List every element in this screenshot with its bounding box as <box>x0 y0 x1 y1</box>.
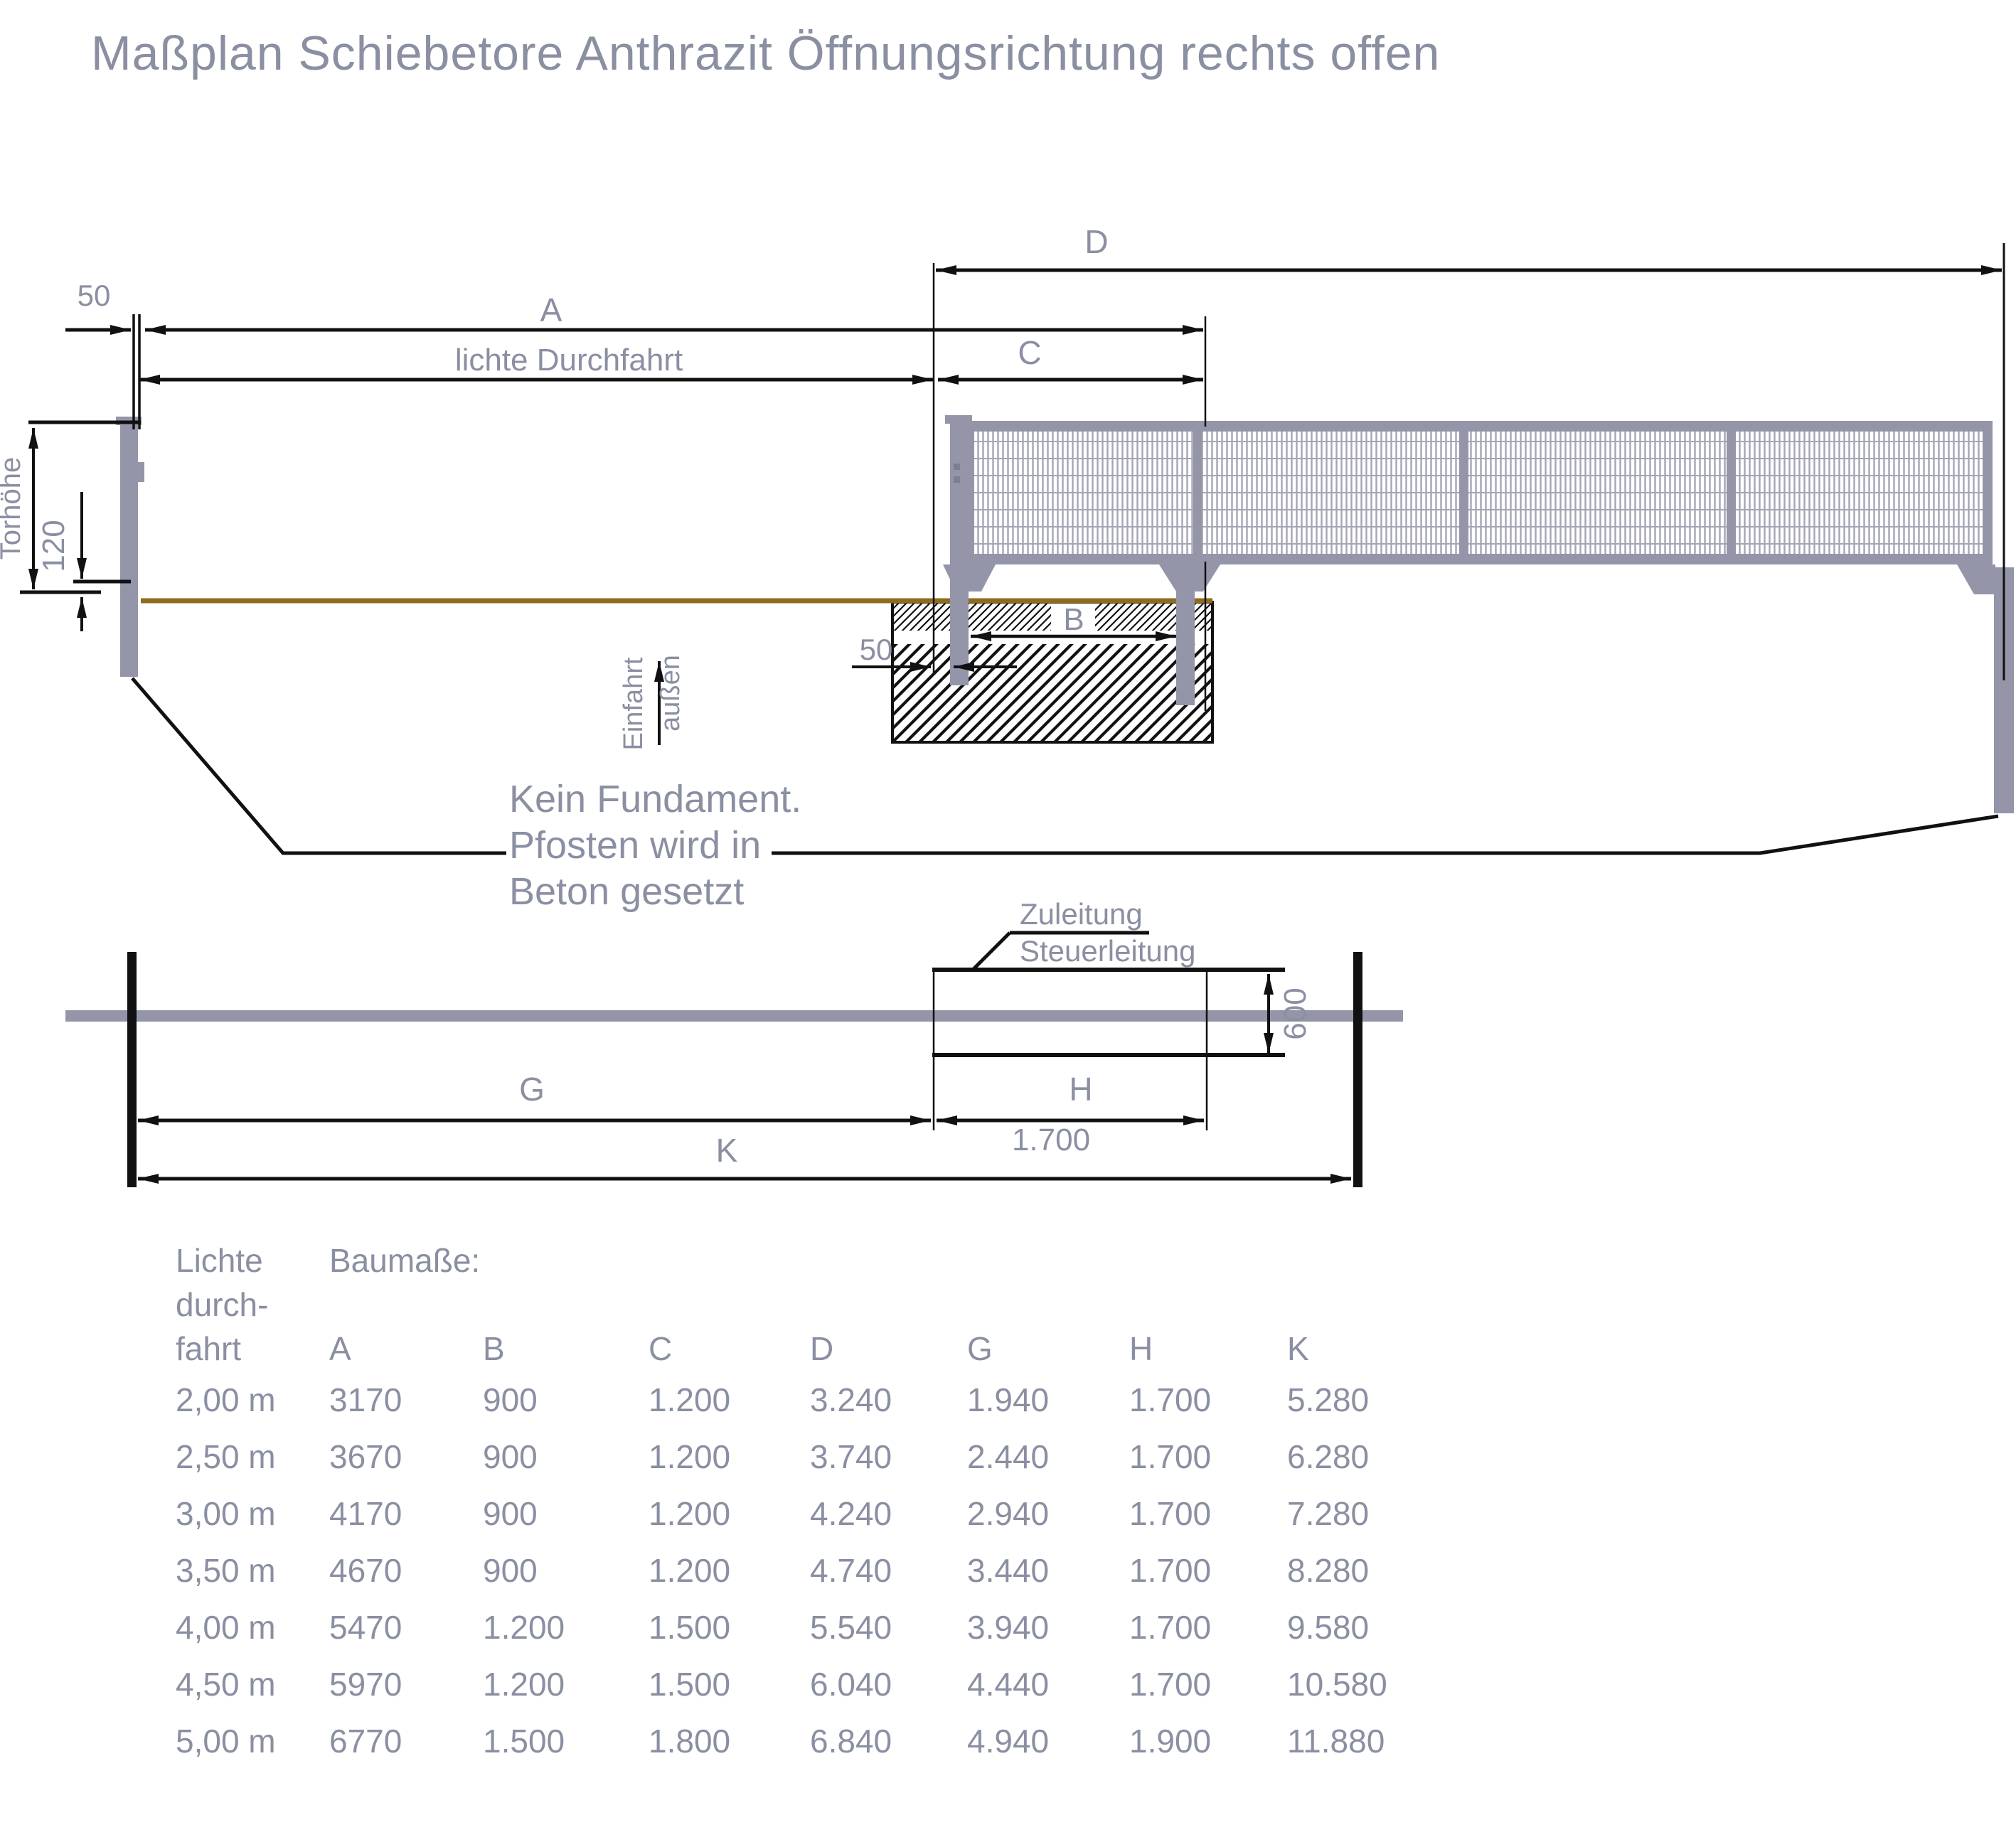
table-cell: 2,50 m <box>176 1439 329 1496</box>
table-column-header: K <box>1287 1331 1429 1382</box>
table-column-header: C <box>649 1331 810 1382</box>
table-cell: 1.940 <box>967 1382 1129 1439</box>
table-cell: 6.280 <box>1287 1439 1429 1496</box>
table-cell: 6.040 <box>810 1666 967 1723</box>
table-cell: 1.200 <box>649 1553 810 1610</box>
dim-1700-label: 1.700 <box>1012 1123 1090 1157</box>
table-cell: 3.940 <box>967 1610 1129 1666</box>
table-cell: 1.800 <box>649 1723 810 1780</box>
plan-foundation <box>932 970 1285 1130</box>
table-cell: 1.700 <box>1129 1496 1287 1553</box>
table-cell: 1.700 <box>1129 1439 1287 1496</box>
plan-gate-band <box>65 1010 1403 1022</box>
plan-view: Zuleitung Steuerleitung 600 G H 1.700 K <box>65 897 1403 1187</box>
table-cell: 5.540 <box>810 1610 967 1666</box>
gate-leaf <box>964 421 1993 564</box>
table-cell: 5470 <box>329 1610 483 1666</box>
table-cell: 1.700 <box>1129 1382 1287 1439</box>
table-cell: 4.440 <box>967 1666 1129 1723</box>
dimension-table: Lichte Baumaße: durch- fahrt A B C D G H… <box>176 1243 1429 1780</box>
table-cell: 2,00 m <box>176 1382 329 1439</box>
note-leader-left <box>132 678 506 853</box>
table-cell: 7.280 <box>1287 1496 1429 1553</box>
dim-b-label: B <box>1063 602 1084 637</box>
table-cell: 11.880 <box>1287 1723 1429 1780</box>
table-cell: 1.500 <box>483 1723 649 1780</box>
foundation-block <box>892 602 1212 742</box>
table-cell: 4,50 m <box>176 1666 329 1723</box>
table-header-clear-width-1: Lichte <box>176 1243 329 1287</box>
table-cell: 1.700 <box>1129 1610 1287 1666</box>
table-cell: 1.500 <box>649 1666 810 1723</box>
foundation-hatch-coarse <box>894 644 1211 741</box>
dim-50-bottom-label: 50 <box>860 633 893 666</box>
table-cell: 3,50 m <box>176 1553 329 1610</box>
gate-foot <box>1957 564 1995 594</box>
table-header-baumasse: Baumaße: <box>329 1243 1429 1287</box>
technical-drawing: 50 A lichte Durchfahrt D C B 50 Torhöhe … <box>0 0 2016 1209</box>
table-cell: 2.440 <box>967 1439 1129 1496</box>
table-cell: 1.200 <box>649 1382 810 1439</box>
dim-g-label: G <box>519 1071 545 1108</box>
table-header-clear-width-3: fahrt <box>176 1331 329 1382</box>
table-cell: 1.700 <box>1129 1553 1287 1610</box>
table-cell: 3.740 <box>810 1439 967 1496</box>
note-leader-right <box>772 816 1998 853</box>
note-line-1: Kein Fundament. <box>509 778 801 820</box>
table-cell: 5,00 m <box>176 1723 329 1780</box>
table-cell: 6770 <box>329 1723 483 1780</box>
table-cell: 3.240 <box>810 1382 967 1439</box>
table-cell: 4,00 m <box>176 1610 329 1666</box>
table-column-header: G <box>967 1331 1129 1382</box>
supply-line-label: Zuleitung <box>1020 897 1143 931</box>
panel-divider <box>1727 425 1736 564</box>
table-cell: 3170 <box>329 1382 483 1439</box>
massplan-page: Maßplan Schiebetore Anthrazit Öffnungsri… <box>0 0 2016 1847</box>
gate-foot-stem <box>1176 591 1195 705</box>
gate-top-rail <box>964 421 1993 432</box>
table-column-header: B <box>483 1331 649 1382</box>
table-column-header: D <box>810 1331 967 1382</box>
table-cell: 4.240 <box>810 1496 967 1553</box>
table-cell: 3670 <box>329 1439 483 1496</box>
dim-h-label: H <box>1069 1071 1092 1108</box>
gate-bottom-rail <box>964 554 1993 564</box>
gate-height-label: Torhöhe <box>0 457 26 560</box>
control-line-label: Steuerleitung <box>1020 934 1196 968</box>
entry-label: Einfahrt <box>619 657 649 750</box>
plan-right-post <box>1353 952 1362 1187</box>
table-cell: 900 <box>483 1439 649 1496</box>
note-line-2: Pfosten wird in <box>509 824 761 867</box>
dim-120-label: 120 <box>36 520 71 572</box>
table-cell: 1.900 <box>1129 1723 1287 1780</box>
gate-frame-right <box>1983 421 1993 564</box>
table-header-clear-width-2: durch- <box>176 1287 329 1331</box>
table-cell: 10.580 <box>1287 1666 1429 1723</box>
table-cell: 6.840 <box>810 1723 967 1780</box>
table-cell: 4670 <box>329 1553 483 1610</box>
table-cell: 2.940 <box>967 1496 1129 1553</box>
dim-600-label: 600 <box>1278 987 1313 1039</box>
table-cell: 3,00 m <box>176 1496 329 1553</box>
dim-a-label: A <box>540 291 562 328</box>
plan-dimension-lines <box>138 974 1351 1179</box>
dim-k-label: K <box>716 1132 738 1169</box>
latch-plate <box>138 462 144 482</box>
dim-50-top-label: 50 <box>78 279 111 312</box>
table-cell: 8.280 <box>1287 1553 1429 1610</box>
table-column-header: A <box>329 1331 483 1382</box>
panel-divider <box>1193 425 1202 564</box>
foundation-note: Kein Fundament. Pfosten wird in Beton ge… <box>509 778 801 913</box>
table-cell: 1.500 <box>649 1610 810 1666</box>
note-line-3: Beton gesetzt <box>509 870 744 913</box>
dim-d-label: D <box>1084 223 1108 260</box>
table-cell: 4.940 <box>967 1723 1129 1780</box>
plan-left-post <box>127 952 137 1187</box>
gate-mesh <box>969 427 1991 563</box>
table-cell: 5.280 <box>1287 1382 1429 1439</box>
table-cell: 9.580 <box>1287 1610 1429 1666</box>
table-cell: 900 <box>483 1553 649 1610</box>
table-cell: 4170 <box>329 1496 483 1553</box>
left-post <box>116 417 144 677</box>
table-cell: 900 <box>483 1496 649 1553</box>
dim-c-label: C <box>1018 334 1041 371</box>
table-cell: 5970 <box>329 1666 483 1723</box>
table-cell: 4.740 <box>810 1553 967 1610</box>
gate-foot <box>1159 564 1220 591</box>
panel-divider <box>1459 425 1468 564</box>
clear-width-label: lichte Durchfahrt <box>455 343 683 378</box>
table-cell: 900 <box>483 1382 649 1439</box>
table-cell: 1.200 <box>483 1610 649 1666</box>
table-column-header: H <box>1129 1331 1287 1382</box>
table-cell: 1.200 <box>483 1666 649 1723</box>
table-cell: 1.700 <box>1129 1666 1287 1723</box>
table-cell: 1.200 <box>649 1439 810 1496</box>
outside-label: außen <box>656 655 686 732</box>
table-cell: 3.440 <box>967 1553 1129 1610</box>
table-cell: 1.200 <box>649 1496 810 1553</box>
elevation-view: 50 A lichte Durchfahrt D C B 50 Torhöhe … <box>0 223 2014 913</box>
